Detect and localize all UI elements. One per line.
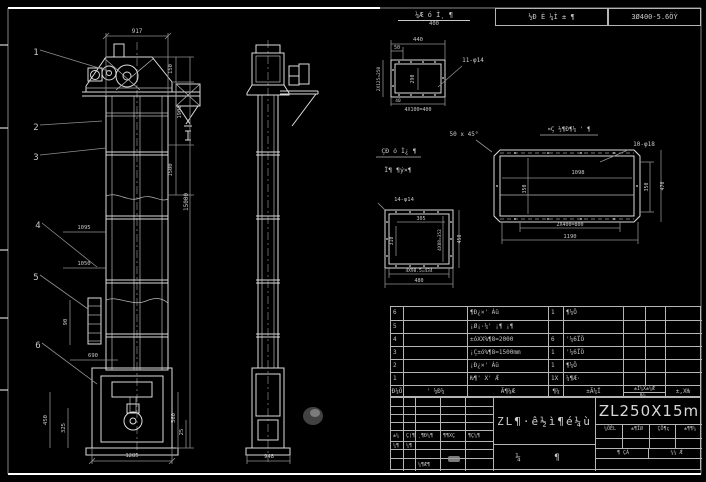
dim-label: 290 — [410, 74, 416, 83]
revision-cell — [416, 406, 441, 414]
bom-cell: 3 — [391, 346, 404, 359]
bom-cell: 1 — [549, 359, 564, 372]
dim-label: 1500 — [168, 163, 174, 176]
note-garbled-1: ÇÐ ó Ì¿ ¶ — [381, 146, 416, 155]
revision-cell — [416, 422, 441, 430]
dim-label: 2X125=250 — [376, 67, 382, 92]
revision-cell: ¶¶XÇ — [441, 430, 466, 441]
revision-row — [391, 406, 493, 414]
dim-label: 350 — [644, 182, 650, 191]
balloon-2: 2 — [33, 123, 38, 133]
revision-cell — [391, 449, 404, 458]
bom-cell — [646, 320, 666, 333]
dim-label: 1095 — [77, 225, 90, 231]
dim-label: 40 — [395, 98, 401, 104]
dim-total-height: 15000 — [183, 193, 190, 211]
bom-cell — [624, 359, 646, 372]
balloon-5: 5 — [33, 273, 38, 283]
dim-label: 2X400=800 — [556, 222, 583, 228]
revision-cell — [441, 398, 466, 406]
revision-cell — [466, 406, 494, 414]
revision-row — [391, 422, 493, 430]
bom-cell: 4 — [391, 333, 404, 346]
note-garbled-3: ¤Ç ½¶Ð¶¼ ' ¶ — [547, 126, 591, 133]
dim-label: 4X98.5=434 — [405, 268, 432, 274]
dim-label: 25 — [179, 429, 185, 436]
revision-cell — [391, 406, 404, 414]
revision-row — [391, 449, 493, 458]
dim-label: 1900 — [177, 105, 183, 118]
attr-value-3 — [650, 438, 676, 448]
revision-cell — [391, 422, 404, 430]
bom-cell — [646, 359, 666, 372]
revision-cell — [416, 441, 441, 449]
view-label-numerator: ¼Æ ó Ì¸ ¶ — [398, 11, 470, 21]
revision-cell — [404, 406, 416, 414]
bom-cell — [624, 346, 646, 359]
title-block-approval-row: ¶ ÇÁ ¼¼ Ǽ — [596, 448, 702, 458]
bom-cell: '¼6ÏÖ — [564, 346, 624, 359]
dim-label: 90 — [63, 319, 69, 326]
bom-cell — [646, 372, 666, 385]
cad-drawing-sheet: 9171501900150015000109510509069045032512… — [0, 0, 706, 482]
view-label-denominator: 400 — [398, 21, 470, 27]
bom-cell: 2 — [391, 359, 404, 372]
drawing-type-label: ¼ ¶ — [494, 445, 596, 471]
attr-header-2: ±¶ÏØ — [623, 425, 650, 438]
bom-row: 1Ƕ¶' X' Ǽ1X¼¶Æ· — [391, 372, 700, 385]
bom-cell — [646, 307, 666, 320]
bom-cell: 1X — [549, 372, 564, 385]
dim-label: 450 — [43, 415, 49, 425]
revision-cell: ¸¶Ð¼¶ — [416, 430, 441, 441]
note-chamfer: 50 x 45° — [450, 131, 479, 138]
revision-row: ¼¶Æ¶ — [391, 458, 493, 471]
approval-left: ¶ ÇÁ — [596, 448, 649, 458]
bom-cell: Ƕ¶' X' Ǽ — [468, 372, 549, 385]
revision-cell — [441, 414, 466, 422]
dim-label: 480 — [414, 278, 423, 284]
bom-cell: ¶¼Ö — [564, 359, 624, 372]
attr-value-4 — [676, 438, 702, 448]
dim-label: 440 — [413, 37, 423, 43]
dim-label: 948 — [264, 454, 274, 460]
attr-header-4: ±¶¶¼ — [676, 425, 702, 438]
bom-cell — [404, 372, 468, 385]
drawing-title: ZL¶·ê½ì¶é¼ù — [494, 398, 596, 445]
revision-cell — [466, 458, 494, 471]
title-block-empty-cell — [596, 458, 702, 471]
balloon-3: 3 — [33, 153, 38, 163]
revision-cell — [466, 422, 494, 430]
dim-label: 690 — [88, 353, 98, 359]
revision-cell — [416, 398, 441, 406]
attr-header-3: ÇÖ¶ç — [650, 425, 676, 438]
bom-cell — [624, 320, 646, 333]
dim-label: 325 — [61, 423, 67, 433]
bom-row: 6¶Ð¿×' Áü1¶¼Ö — [391, 307, 700, 320]
revision-cell — [466, 398, 494, 406]
note-garbled-2: Ï¶ ¶ý×¶ — [384, 165, 411, 174]
dim-label: 1190 — [563, 234, 576, 240]
bom-cell: 1 — [549, 307, 564, 320]
title-block-attr-values — [596, 438, 702, 448]
dim-label: 305 — [416, 216, 425, 222]
dim-label: 310 — [389, 236, 395, 245]
revision-row — [391, 414, 493, 422]
bom-cell — [404, 346, 468, 359]
bom-cell — [404, 320, 468, 333]
bom-cell: ¶¼Ö — [564, 307, 624, 320]
balloon-6: 6 — [35, 341, 40, 351]
bom-cell: 1 — [391, 372, 404, 385]
dim-label: 470 — [660, 181, 666, 190]
note-10-phi18: 10-φ18 — [633, 141, 655, 148]
parts-list-rows: 6¶Ð¿×' Áü1¶¼Ö5¡Ø¡·¼' ¡¶ ¡¶4±óXX%¶8=20006… — [391, 307, 700, 385]
bom-cell: 5 — [391, 320, 404, 333]
bom-cell — [624, 372, 646, 385]
title-block-attr-headers: ¼ÖÊL ±¶ÏØ ÇÖ¶ç ±¶¶¼ — [596, 425, 702, 438]
dim-label: 50 — [394, 45, 400, 51]
revision-cell — [416, 414, 441, 422]
revision-cell: Ç(¶ — [404, 430, 416, 441]
front-view — [40, 33, 200, 464]
parts-list-table: 6¶Ð¿×' Áü1¶¼Ö5¡Ø¡·¼' ¡¶ ¡¶4±óXX%¶8=20006… — [390, 306, 701, 397]
bom-row: 3¡Ç±ó%¶8=1500mm1'¼6ÏÖ — [391, 346, 700, 359]
revision-cell: ¼¶ — [404, 441, 416, 449]
revision-cell: ¼¶Æ¶ — [416, 458, 441, 471]
bom-cell: ±óXX%¶8=2000 — [468, 333, 549, 346]
signature-smudge — [448, 456, 460, 462]
bom-row: 5¡Ø¡·¼' ¡¶ ¡¶ — [391, 320, 700, 333]
balloon-4: 4 — [35, 221, 40, 231]
bom-cell — [666, 346, 702, 359]
bom-cell — [646, 346, 666, 359]
bom-cell: 1 — [549, 346, 564, 359]
bom-header-stacked-top: ±Ï¼X±¼Æ — [624, 386, 665, 393]
revision-cell — [404, 458, 416, 471]
side-view — [246, 40, 318, 464]
bom-cell: 6 — [549, 333, 564, 346]
revision-cell — [466, 449, 494, 458]
revision-row: ¼¶¼¶ — [391, 441, 493, 449]
dim-917: 917 — [132, 28, 143, 35]
dim-label: 1050 — [77, 261, 90, 267]
bom-cell — [666, 359, 702, 372]
revision-cell: ¶Ç¼¶ — [466, 430, 494, 441]
revision-cell: ¼¶ — [391, 441, 404, 449]
bom-row: 2¡Ð¿×' Áü1¶¼Ö — [391, 359, 700, 372]
attr-header-1: ¼ÖÊL — [596, 425, 623, 438]
bom-cell — [666, 333, 702, 346]
revision-row: ±¼Ç(¶¸¶Ð¼¶¶¶XÇ¶Ç¼¶ — [391, 430, 493, 441]
bom-row: 4±óXX%¶8=20006'¼6ÏÖ — [391, 333, 700, 346]
revision-cell — [466, 441, 494, 449]
bom-cell: ¡Ø¡·¼' ¡¶ ¡¶ — [468, 320, 549, 333]
title-block-revision-grid: ±¼Ç(¶¸¶Ð¼¶¶¶XÇ¶Ç¼¶¼¶¼¶¼¶Æ¶ — [391, 398, 494, 471]
bom-cell — [404, 307, 468, 320]
dim-label: 450 — [457, 234, 463, 243]
bom-cell: '¼6ÏÖ — [564, 333, 624, 346]
bom-cell — [666, 307, 702, 320]
header-cell-left: ½Ð È ¼Ì ± ¶ — [495, 8, 608, 26]
view-label-fraction: ¼Æ ó Ì¸ ¶ 400 — [398, 11, 470, 27]
dim-label: 1098 — [571, 170, 584, 176]
dim-label: 4X100=400 — [404, 107, 431, 113]
dim-label: 350 — [522, 184, 528, 193]
revision-cell — [416, 449, 441, 458]
approval-right: ¼¼ Ǽ — [649, 448, 702, 458]
bom-cell — [666, 320, 702, 333]
model-number: ZL250X15m — [596, 398, 702, 425]
bom-cell — [564, 320, 624, 333]
bom-cell: ¶Ð¿×' Áü — [468, 307, 549, 320]
revision-cell — [441, 441, 466, 449]
revision-row — [391, 398, 493, 406]
bom-cell — [624, 333, 646, 346]
revision-cell — [441, 422, 466, 430]
smudge-artifact — [303, 407, 323, 425]
revision-cell — [391, 458, 404, 471]
revision-cell — [404, 414, 416, 422]
bom-cell: ¡Ç±ó%¶8=1500mm — [468, 346, 549, 359]
bom-cell: 6 — [391, 307, 404, 320]
dim-label: 360 — [171, 413, 177, 423]
bom-cell — [549, 320, 564, 333]
revision-cell — [404, 449, 416, 458]
revision-cell — [466, 414, 494, 422]
bom-cell — [624, 307, 646, 320]
revision-cell — [391, 398, 404, 406]
revision-cell — [391, 414, 404, 422]
dim-label: 150 — [168, 64, 174, 74]
revision-cell — [441, 406, 466, 414]
attr-value-1 — [596, 438, 623, 448]
bom-cell — [404, 333, 468, 346]
bom-cell — [646, 333, 666, 346]
dim-label: 4X88=352 — [437, 229, 443, 251]
bom-cell — [404, 359, 468, 372]
note-11-phi14: 11-φ14 — [462, 57, 484, 64]
dim-label: 1285 — [125, 453, 138, 459]
revision-cell: ±¼ — [391, 430, 404, 441]
attr-value-2 — [623, 438, 650, 448]
bom-cell: ¼¶Æ· — [564, 372, 624, 385]
note-14-phi14: 14-φ14 — [394, 197, 415, 203]
balloon-1: 1 — [33, 48, 38, 58]
revision-cell — [404, 422, 416, 430]
bom-cell: ¡Ð¿×' Áü — [468, 359, 549, 372]
revision-cell — [404, 398, 416, 406]
title-block: ±¼Ç(¶¸¶Ð¼¶¶¶XÇ¶Ç¼¶¼¶¼¶¼¶Æ¶ ZL¶·ê½ì¶é¼ù ¼… — [390, 397, 701, 470]
bom-cell — [666, 372, 702, 385]
header-cell-right: 3Ø400-5.6ÖÝ — [608, 8, 701, 26]
